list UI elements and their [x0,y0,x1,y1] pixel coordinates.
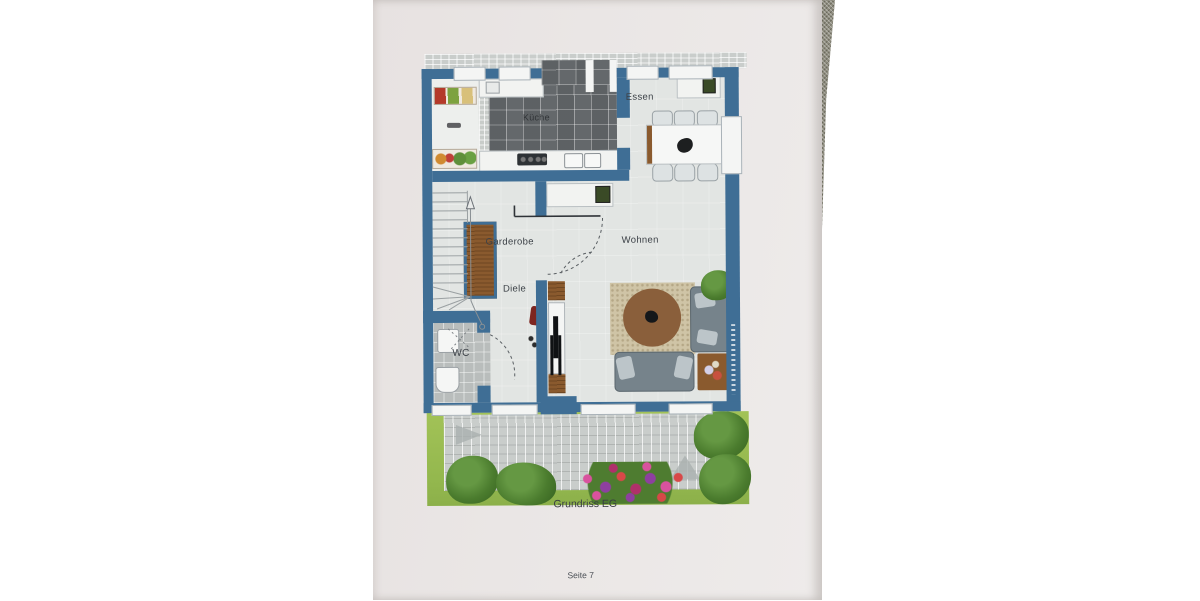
room-label-essen: Essen [626,92,654,103]
room-label-wohnen: Wohnen [622,235,659,246]
page-number: Seite 7 [541,570,621,580]
paper-sheet: Essen Küche Garderobe Diele Wohnen WC Gr… [373,0,822,600]
plan-caption: Grundriss EG [525,498,645,511]
kitchen-glass-slit-right [610,60,617,92]
kitchen-glass-slit-left [586,60,594,92]
photo-of-floorplan-page: { "photo": { "caption": "Grundriss EG", … [0,0,1200,600]
partitions-and-door-swings [371,0,824,601]
room-label-garderobe: Garderobe [486,236,534,247]
room-label-kueche: Küche [523,112,550,122]
right-wall-vertical-text [731,324,735,394]
room-label-wc: WC [452,348,469,359]
floorplan-drawing: Essen Küche Garderobe Diele Wohnen WC Gr… [371,0,824,601]
room-label-diele: Diele [503,283,526,294]
